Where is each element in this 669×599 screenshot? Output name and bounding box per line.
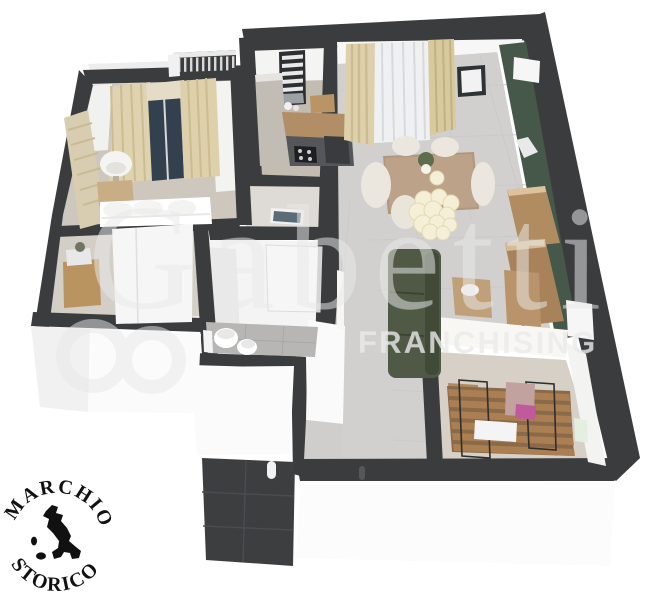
svg-text:Gabetti: Gabetti [88, 175, 614, 342]
svg-text:FRANCHISING: FRANCHISING [358, 325, 598, 361]
